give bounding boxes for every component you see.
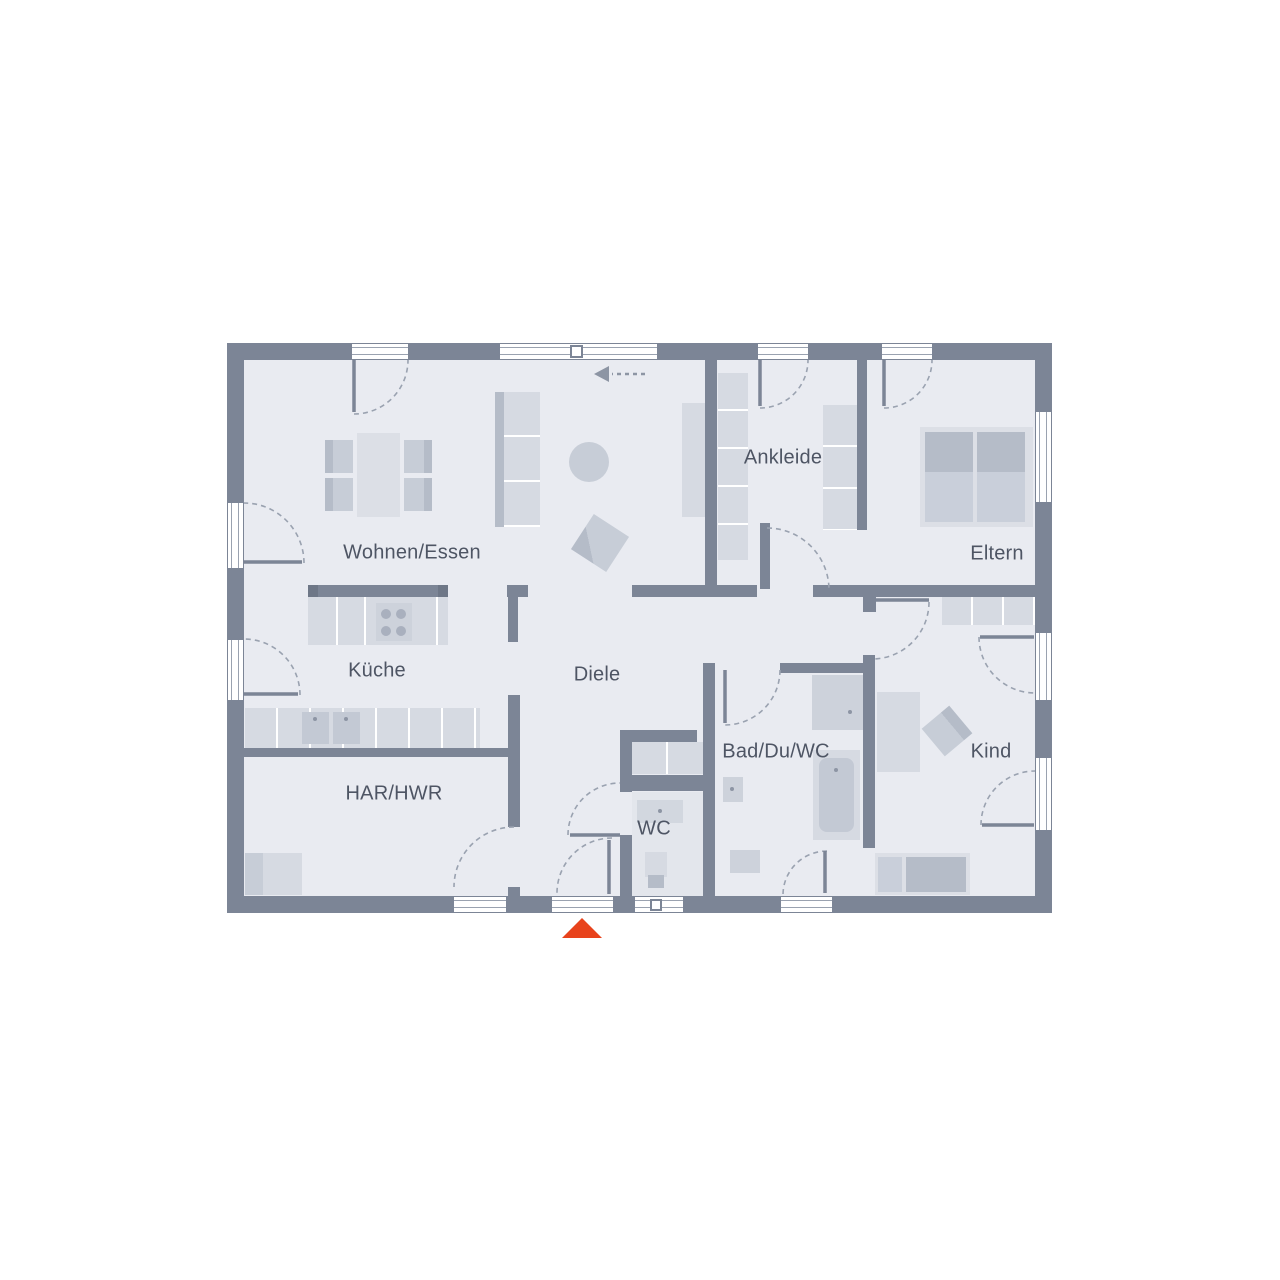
- wall-child-door-jamb: [863, 595, 876, 612]
- child-bed-pillow: [878, 857, 902, 892]
- cooktop-burner: [396, 609, 406, 619]
- window-child-right-lower: [1036, 758, 1051, 830]
- wall-hall-bath: [703, 663, 715, 897]
- window-symbol-bottom: [650, 899, 662, 911]
- wall-dressing-door-jamb: [760, 523, 770, 589]
- wall-wc-west: [620, 835, 632, 896]
- room-label-kueche: Küche: [348, 660, 406, 683]
- dining-chair: [404, 440, 432, 473]
- room-label-diele: Diele: [574, 664, 621, 687]
- cooktop-burner: [381, 609, 391, 619]
- cooktop: [376, 603, 412, 641]
- coffee-table: [569, 442, 609, 482]
- hall-vanity: [632, 742, 703, 774]
- wall-hall-north-mid: [632, 585, 757, 597]
- window-bath-bottom: [781, 897, 832, 912]
- wall-kitchen-cap-left: [308, 585, 318, 597]
- wall-kitchen-utility: [244, 748, 520, 757]
- wall-niche-top: [632, 730, 697, 742]
- wall-bath-child: [863, 655, 875, 848]
- window-parents-top: [882, 344, 932, 359]
- sink-tap: [344, 717, 348, 721]
- dining-chair: [325, 440, 353, 473]
- shower-drain: [848, 710, 852, 714]
- cooktop-burner: [381, 626, 391, 636]
- wall-hall-stub-v: [508, 597, 518, 642]
- window-kitchen-left: [228, 640, 243, 700]
- room-label-wohnen-essen: Wohnen/Essen: [343, 542, 481, 565]
- toilet: [645, 852, 667, 877]
- window-living-left: [228, 503, 243, 568]
- wall-hall-north-east: [813, 585, 1035, 597]
- wall-niche-west: [620, 730, 632, 792]
- dresser-child: [942, 597, 1035, 625]
- wardrobe-right: [823, 405, 857, 530]
- child-bed-mattress: [906, 857, 966, 892]
- tv-sideboard: [495, 392, 540, 527]
- window-symbol-top: [570, 345, 583, 358]
- washbasin-tap: [730, 787, 734, 791]
- cooktop-burner: [396, 626, 406, 636]
- wall-niche-south: [632, 775, 703, 791]
- wall-hall-utility-lower: [508, 887, 520, 896]
- dining-chair: [404, 478, 432, 511]
- window-terrace-door-living: [352, 344, 408, 359]
- window-parents-right: [1036, 412, 1051, 502]
- outer-wall-left: [227, 343, 244, 913]
- room-label-eltern: Eltern: [970, 543, 1023, 566]
- wall-dressing-parents: [857, 360, 867, 530]
- shower: [812, 675, 863, 730]
- wall-kitchen-cap-right: [438, 585, 448, 597]
- bed-pillow: [977, 432, 1025, 472]
- utility-unit: [245, 853, 302, 895]
- room-label-ankleide: Ankleide: [744, 447, 822, 470]
- room-label-kind: Kind: [971, 741, 1012, 764]
- wall-hall-utility-upper: [508, 695, 520, 827]
- dining-chair: [325, 478, 353, 511]
- dining-table: [357, 433, 400, 517]
- room-label-bad-du-wc: Bad/Du/WC: [722, 741, 829, 764]
- entrance-door: [552, 897, 613, 912]
- washbasin-tap: [658, 809, 662, 813]
- wall-living-dressing: [705, 360, 717, 587]
- sideboard-living: [682, 403, 705, 517]
- window-dressing: [758, 344, 808, 359]
- wall-bath-top: [780, 663, 863, 673]
- window-child-right-upper: [1036, 633, 1051, 700]
- kitchen-counter-lower: [245, 708, 480, 748]
- wardrobe-child: [877, 692, 920, 772]
- bathtub-drain: [834, 768, 838, 772]
- bath-unit: [730, 850, 760, 873]
- window-utility-bottom: [454, 897, 506, 912]
- room-label-wc: WC: [637, 818, 671, 841]
- entrance-marker: [562, 918, 602, 938]
- toilet-tank: [648, 875, 664, 888]
- sink-tap: [313, 717, 317, 721]
- floorplan-canvas: Wohnen/Essen Küche Diele Ankleide Eltern…: [0, 0, 1280, 1280]
- room-label-har-hwr: HAR/HWR: [346, 783, 443, 806]
- wall-hall-stub-h: [507, 585, 528, 597]
- bed-pillow: [925, 432, 973, 472]
- wall-kitchen-band: [308, 585, 448, 597]
